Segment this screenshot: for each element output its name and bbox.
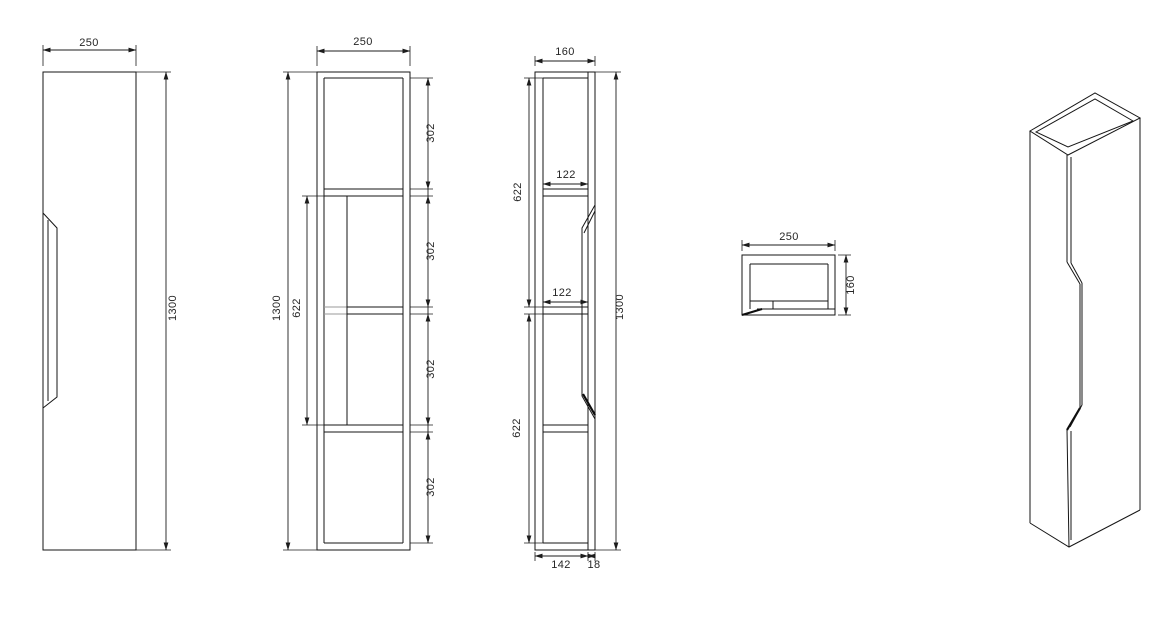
side-depth-label: 160 [555,46,575,58]
technical-drawing-sheet: 250 1300 250 1300 622 302 302 302 302 [0,0,1169,626]
view-isometric [1030,93,1140,547]
side-section-extension-lines [524,78,543,543]
side-shelf-lines [543,189,588,432]
iso-groove-bottom-diagonal-inner [1070,405,1082,427]
top-width-label: 250 [779,231,799,243]
carcass-comp3-label: 302 [425,359,437,379]
carcass-compartment-extension-lines [410,78,433,543]
top-side-panel-lines [750,264,828,309]
iso-front-corner-lower-lines [1067,430,1071,547]
carcass-outline-path [317,72,410,550]
iso-groove-top-diagonals [1067,262,1082,284]
top-groove-diagonal [742,309,762,315]
side-upper-section-label: 622 [512,182,524,202]
view-top-section: 250 160 [742,231,857,315]
side-height-label: 1300 [614,294,626,320]
view-front-closed: 250 1300 [43,37,179,550]
iso-bottom-edges-path [1030,510,1140,547]
carcass-shelf2-lines [347,307,403,314]
carcass-comp4-label: 302 [425,477,437,497]
front-height-label: 1300 [167,295,179,321]
iso-groove-vertical-lines [1080,283,1082,408]
carcass-shelf3-lines [324,425,403,432]
front-width-label: 250 [79,37,99,49]
view-side-section: 160 122 122 622 622 1300 142 18 [511,46,626,571]
side-handle-groove-accent-bottom [583,394,595,415]
front-handle-groove-path [43,213,57,408]
side-door-thickness-label: 18 [587,559,600,571]
side-shelf2-depth-label: 122 [552,287,572,299]
cabinet-drawing-svg: 250 1300 250 1300 622 302 302 302 302 [0,0,1169,626]
carcass-shelf1-lines [324,189,403,196]
carcass-shelf2-hidden-lines [324,307,347,314]
side-top-bottom-panel-lines [543,78,588,543]
carcass-middle-label: 622 [291,298,303,318]
carcass-width-label: 250 [353,36,373,48]
carcass-height-label: 1300 [271,295,283,321]
carcass-middle-extension-lines [302,196,324,425]
iso-top-face-path [1030,93,1140,155]
carcass-comp2-label: 302 [425,241,437,261]
carcass-width-extension-lines [317,46,410,66]
iso-front-corner-upper-lines [1067,155,1071,263]
carcass-top-bottom-panel-lines [324,78,403,543]
carcass-comp1-label: 302 [425,123,437,143]
view-front-carcass: 250 1300 622 302 302 302 302 [271,36,437,550]
side-body-depth-label: 142 [551,559,571,571]
top-depth-label: 160 [845,275,857,295]
carcass-side-panel-lines [324,78,403,543]
side-shelf1-depth-label: 122 [556,169,576,181]
side-outline-path [535,72,595,550]
side-lower-section-label: 622 [511,418,523,438]
